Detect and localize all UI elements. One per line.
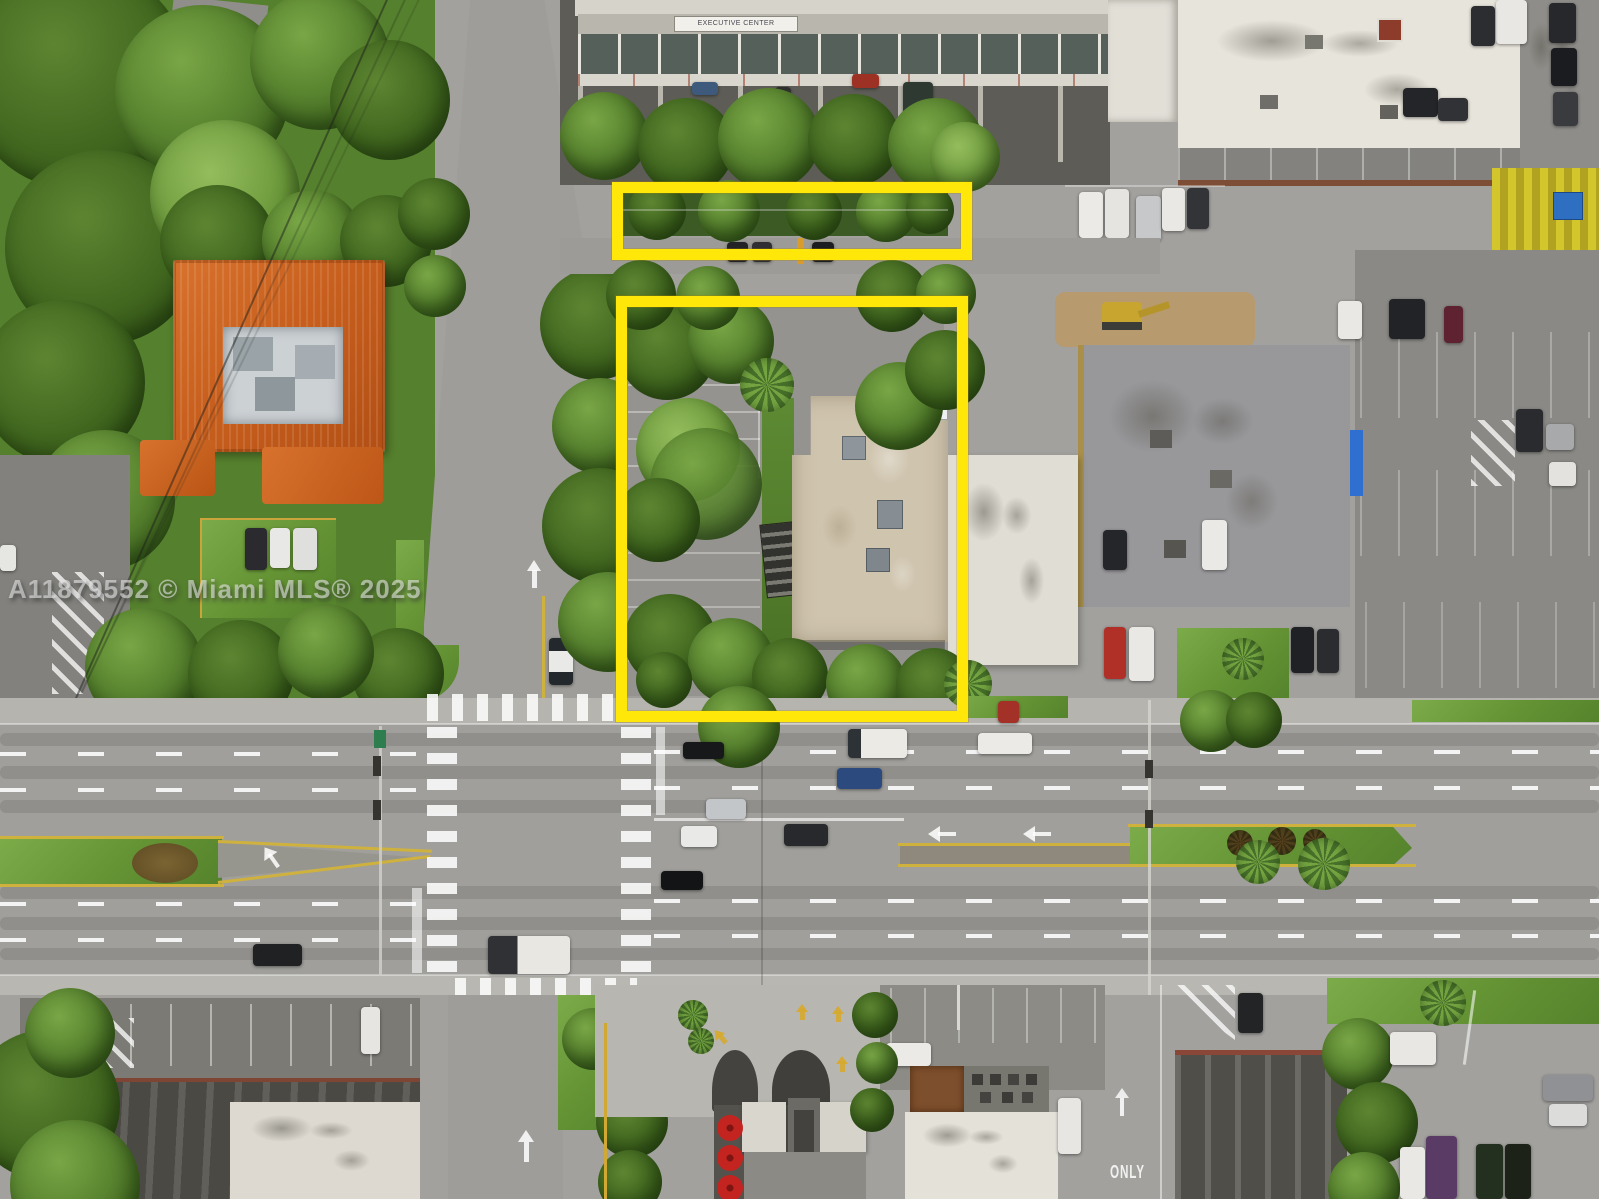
- suv: [1543, 1075, 1593, 1101]
- stop-bar: [412, 888, 422, 973]
- tree: [808, 94, 900, 186]
- tire-streak: [0, 917, 1599, 930]
- tree: [560, 92, 648, 180]
- tree: [398, 178, 470, 250]
- car: [1400, 1147, 1425, 1199]
- tree: [718, 88, 820, 190]
- car: [661, 871, 703, 890]
- striped-zone: [1160, 985, 1235, 1040]
- weathered-roof-building: [1175, 1055, 1347, 1199]
- tree: [278, 604, 374, 700]
- stall-lines: [1365, 602, 1597, 688]
- palm-tree: [1236, 840, 1280, 884]
- lane-line: [654, 750, 1599, 754]
- palm-tree: [678, 1000, 708, 1030]
- restaurant-roof-lower: [744, 1152, 866, 1199]
- car: [706, 799, 746, 819]
- car: [1238, 993, 1263, 1033]
- signal-head: [373, 800, 381, 820]
- car: [784, 824, 828, 846]
- car: [683, 742, 724, 759]
- curb-line: [0, 723, 1599, 725]
- aerial-photo: EXECUTIVE CENTER: [0, 0, 1599, 1199]
- palm-tree: [1222, 638, 1264, 680]
- rooftop-hvac: [1150, 430, 1172, 448]
- crosswalk: [427, 694, 623, 721]
- car: [1389, 299, 1425, 339]
- building-banner: EXECUTIVE CENTER: [674, 16, 798, 32]
- bush: [850, 1088, 894, 1132]
- lane-line: [0, 788, 424, 792]
- tire-streak: [0, 886, 1599, 899]
- brown-roof: [910, 1066, 964, 1112]
- car: [1553, 92, 1578, 126]
- only-road-marking: ONLY: [1110, 1161, 1145, 1182]
- patio-umbrella: [717, 1145, 743, 1171]
- exec-center-glass: [578, 34, 1108, 74]
- crosswalk: [427, 727, 457, 973]
- car: [1438, 98, 1468, 121]
- highlight-main-parcel: [616, 296, 968, 722]
- car: [1444, 306, 1463, 343]
- tire-streak: [0, 766, 1599, 779]
- tire-streak: [0, 733, 1599, 746]
- car: [681, 826, 717, 847]
- exec-center-tower: [1108, 0, 1178, 122]
- bush: [856, 1042, 898, 1084]
- lane-edge: [1160, 985, 1162, 1199]
- tree: [404, 255, 466, 317]
- car: [361, 1007, 380, 1054]
- car: [1162, 188, 1185, 231]
- orange-wing-roof: [262, 447, 383, 504]
- signal-head: [1145, 760, 1153, 778]
- signal-pole: [1148, 700, 1151, 995]
- car: [1317, 629, 1339, 673]
- grass-verge: [1412, 700, 1599, 722]
- east-median-concrete: [900, 845, 1132, 865]
- van: [1129, 627, 1154, 681]
- street-name-sign: [374, 730, 386, 748]
- median-yellow-line: [0, 884, 224, 887]
- mls-watermark: A11879552 © Miami MLS® 2025: [8, 574, 422, 605]
- yellow-curb: [604, 1023, 607, 1199]
- car: [852, 74, 879, 88]
- car: [1187, 188, 1209, 229]
- signal-head: [373, 756, 381, 776]
- blue-dumpster: [1553, 192, 1583, 220]
- car: [1338, 301, 1362, 339]
- car: [1079, 192, 1103, 238]
- car: [270, 528, 290, 568]
- car: [245, 528, 267, 570]
- light-pole: [957, 985, 960, 1030]
- lane-line: [654, 786, 1599, 790]
- side-street-south: [448, 995, 563, 1199]
- car: [692, 82, 718, 95]
- lane-line: [0, 752, 424, 756]
- street-centerline: [542, 596, 545, 700]
- car: [1551, 48, 1577, 86]
- stall-lines: [890, 988, 1100, 1043]
- car: [837, 768, 882, 789]
- van: [1496, 0, 1527, 44]
- median-yellow-line: [898, 843, 1134, 846]
- tire-streak: [0, 800, 1599, 813]
- warehouse-roof: [1178, 0, 1520, 150]
- median-yellow-line: [898, 864, 1134, 867]
- white-roof-building: [905, 1112, 1058, 1199]
- car: [1136, 196, 1161, 241]
- car: [1471, 6, 1495, 46]
- car: [1104, 627, 1126, 679]
- palm-tree: [1298, 838, 1350, 890]
- lane-line: [654, 934, 1599, 938]
- car: [998, 701, 1019, 723]
- car: [1549, 1104, 1587, 1126]
- box-truck: [848, 729, 907, 758]
- car: [1291, 627, 1314, 673]
- palm-tree: [688, 1028, 714, 1054]
- white-roof-building: [230, 1102, 420, 1199]
- lane-line: [0, 938, 424, 942]
- van: [978, 733, 1032, 754]
- tree: [25, 988, 115, 1078]
- car: [1103, 530, 1127, 570]
- rooftop-unit-red: [1377, 18, 1403, 42]
- stop-bar: [656, 727, 665, 815]
- car: [1403, 88, 1438, 117]
- tree: [1226, 692, 1282, 748]
- median-yellow-line: [0, 836, 224, 839]
- car: [1505, 1144, 1531, 1199]
- car: [1549, 462, 1576, 486]
- car: [1549, 3, 1576, 43]
- striped-zone: [1471, 420, 1515, 486]
- excavator-track: [1102, 322, 1142, 330]
- dead-grass-patch: [132, 843, 198, 883]
- building-banner-text: EXECUTIVE CENTER: [675, 17, 797, 31]
- patio-umbrella: [717, 1175, 743, 1199]
- tree: [1322, 1018, 1394, 1090]
- lane-line: [0, 902, 424, 906]
- patio-umbrella: [717, 1115, 743, 1141]
- lane-line-solid: [654, 818, 904, 821]
- car: [253, 944, 302, 966]
- stall-lines: [1360, 332, 1598, 418]
- median-yellow-line: [1128, 824, 1416, 827]
- storefront-brown-band: [1178, 180, 1520, 186]
- tree: [598, 1150, 662, 1199]
- blue-tarp: [1350, 430, 1363, 496]
- car: [1105, 189, 1129, 238]
- car: [293, 528, 317, 570]
- signal-head: [1145, 810, 1153, 828]
- exec-center-ledge: [578, 74, 1108, 86]
- tire-streak: [0, 948, 1599, 960]
- suv: [1516, 409, 1543, 452]
- car: [0, 545, 16, 571]
- bush: [852, 992, 898, 1038]
- lane-line: [654, 899, 1599, 903]
- van: [1426, 1136, 1457, 1199]
- car: [1476, 1144, 1503, 1199]
- gray-roof-edge: [1078, 345, 1084, 607]
- car: [1390, 1032, 1436, 1065]
- curb-line: [0, 974, 1599, 976]
- rooftop-unit: [972, 1074, 983, 1085]
- highlight-strip-parcel: [612, 182, 972, 260]
- crosswalk: [621, 727, 651, 973]
- stall-line: [1065, 185, 1225, 187]
- car: [1546, 424, 1574, 450]
- palm-tree: [1420, 980, 1466, 1026]
- exec-center-sign-band: [578, 14, 1108, 34]
- van: [1058, 1098, 1081, 1154]
- rooftop-unit: [1260, 95, 1278, 109]
- restaurant-canopy: [742, 1102, 786, 1152]
- sloped-roof-strip: [1178, 148, 1520, 182]
- van: [1202, 520, 1227, 570]
- dirt-area: [1055, 292, 1255, 347]
- box-truck: [488, 936, 570, 974]
